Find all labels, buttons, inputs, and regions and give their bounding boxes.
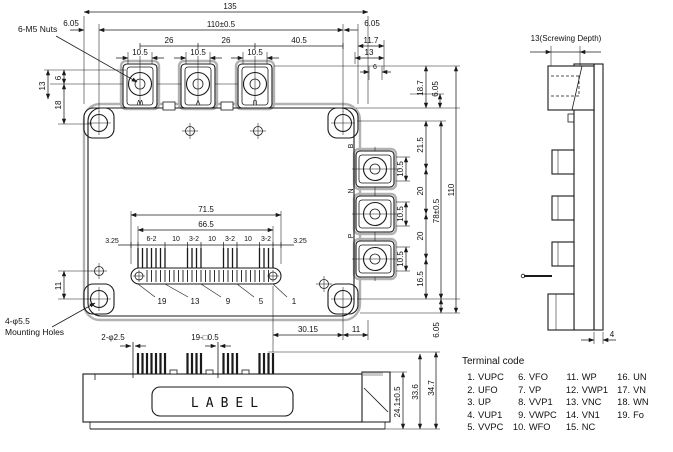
dim-edge-right: 6.05 xyxy=(364,19,380,28)
guide-pin-round-label: 2-φ2.5 xyxy=(101,333,125,342)
dim-right-20b: 20 xyxy=(416,231,425,240)
pin-number-13: 13 xyxy=(191,297,200,306)
dim-right-18-7: 18.7 xyxy=(416,80,425,96)
dim-left-6: 6 xyxy=(54,75,63,80)
terminal-letter-v: V xyxy=(195,98,200,105)
nuts-leader xyxy=(56,36,137,82)
terminal-code-col-1: 1.VUPC 2.UFO 3.UP 4.VUP1 5.VVPC xyxy=(460,372,504,432)
svg-text:10.5: 10.5 xyxy=(132,48,148,57)
svg-text:10.5: 10.5 xyxy=(396,161,405,177)
terminal-letter-p: P xyxy=(348,233,355,238)
terminal-item: 13.VNC xyxy=(564,397,608,407)
dim-pin-group-1: 6-2 xyxy=(146,236,156,243)
dim-right-20a: 20 xyxy=(416,186,425,195)
terminal-letter-n: N xyxy=(348,188,355,193)
pin-number-1: 1 xyxy=(292,297,297,306)
terminal-code-title: Terminal code xyxy=(462,356,672,367)
top-view: W V U B N P xyxy=(50,56,400,320)
dim-right-pitch: 78±0.5 xyxy=(432,198,441,223)
dim-terminal-pitch-2: 26 xyxy=(222,36,231,45)
dim-pin-group-3: 3-2 xyxy=(225,236,235,243)
terminal-letter-b: B xyxy=(348,143,355,148)
svg-text:10.5: 10.5 xyxy=(190,48,206,57)
top-dimensions: 135 110±0.5 6.05 6.05 26 26 40.5 10.5 10… xyxy=(63,2,391,112)
mounting-holes-label-2: Mounting Holes xyxy=(5,327,64,337)
dim-right-16-5: 16.5 xyxy=(416,271,425,287)
igbt-module-outline-drawing: W V U B N P xyxy=(0,0,673,452)
pin-number-9: 9 xyxy=(226,297,231,306)
terminal-item: 8.VVP1 xyxy=(511,397,557,407)
dim-front-33-6: 33.6 xyxy=(411,384,420,400)
terminal-item: 4.VUP1 xyxy=(460,410,504,420)
dim-right-overall: 110 xyxy=(447,183,456,196)
dim-overall-width: 135 xyxy=(223,2,237,11)
dim-right-21-5: 21.5 xyxy=(416,137,425,153)
dim-left-18: 18 xyxy=(54,100,63,109)
dim-pins-outer: 71.5 xyxy=(198,205,214,214)
terminal-letter-w: W xyxy=(136,98,143,105)
terminal-item: 3.UP xyxy=(460,397,504,407)
dim-pin-group-4: 3-2 xyxy=(261,236,271,243)
screwing-depth-label: 13(Screwing Depth) xyxy=(531,34,602,43)
mounting-tabs xyxy=(84,108,358,314)
terminal-code-col-4: 16.UN 17.VN 18.WN 19.Fo xyxy=(615,372,649,432)
mounting-holes xyxy=(87,111,355,311)
dim-pins-edge-left: 3.25 xyxy=(105,238,119,245)
dim-terminal-pitch-3: 40.5 xyxy=(291,36,307,45)
dim-right-top-a: 11.7 xyxy=(364,36,380,45)
front-view: LABEL 2-φ2.5 19-□0.5 24.1±0.5 33.6 34.7 xyxy=(83,333,440,429)
terminal-item: 6.VFO xyxy=(511,372,557,382)
pin-dimensions: 71.5 66.5 3.25 3.25 6-2 10 3-2 10 3-2 10… xyxy=(105,205,307,306)
dim-pins-edge-right: 3.25 xyxy=(293,238,307,245)
svg-text:10.5: 10.5 xyxy=(396,206,405,222)
svg-text:10.5: 10.5 xyxy=(247,48,263,57)
dim-body-width: 110±0.5 xyxy=(207,20,236,29)
dim-pin-space-3: 10 xyxy=(244,236,252,243)
terminal-item: 10.WFO xyxy=(511,422,557,432)
mounting-holes-label-1: 4-φ5.5 xyxy=(5,316,30,326)
terminal-item: 9.VWPC xyxy=(511,410,557,420)
terminal-item: 17.VN xyxy=(615,385,649,395)
terminal-code-col-3: 11.WP 12.VWP1 13.VNC 14.VN1 15.NC xyxy=(564,372,608,432)
terminal-item: 12.VWP1 xyxy=(564,385,608,395)
dim-pin-group-2: 3-2 xyxy=(189,236,199,243)
dim-edge-left: 6.05 xyxy=(63,19,79,28)
dim-terminal-pitch-1: 26 xyxy=(165,36,174,45)
terminal-item: 15.NC xyxy=(564,422,608,432)
label-text: LABEL xyxy=(191,396,265,411)
pin-number-19: 19 xyxy=(158,297,167,306)
terminal-item: 18.WN xyxy=(615,397,649,407)
dim-front-24-1: 24.1±0.5 xyxy=(393,386,402,418)
terminal-item: 19.Fo xyxy=(615,410,649,420)
terminal-code-table: Terminal code 1.VUPC 2.UFO 3.UP 4.VUP1 5… xyxy=(460,356,672,432)
dim-pin-space-2: 10 xyxy=(208,236,216,243)
pin-number-5: 5 xyxy=(259,297,264,306)
right-screw-terminals: B N P xyxy=(348,143,400,281)
top-screw-terminals: W V U xyxy=(50,56,272,108)
terminal-item: 14.VN1 xyxy=(564,410,608,420)
dim-base-thickness: 4 xyxy=(610,330,615,339)
dim-right-bottom: 6.05 xyxy=(432,322,441,338)
side-view: 13(Screwing Depth) 4 xyxy=(521,34,616,344)
dim-pins-inner: 66.5 xyxy=(198,220,214,229)
guide-pin-square-label: 19-□0.5 xyxy=(191,333,219,342)
terminal-item: 16.UN xyxy=(615,372,649,382)
module-body-outline xyxy=(88,108,354,316)
terminal-item: 2.UFO xyxy=(460,385,504,395)
dim-front-34-7: 34.7 xyxy=(427,380,436,396)
nuts-label: 6-M5 Nuts xyxy=(18,24,57,34)
dim-right-top-c: 6 xyxy=(373,64,377,71)
terminal-item: 5.VVPC xyxy=(460,422,504,432)
front-terminal-shroud xyxy=(362,372,390,422)
terminal-letter-u: U xyxy=(252,98,257,105)
terminal-item: 1.VUPC xyxy=(460,372,504,382)
terminal-item: 7.VP xyxy=(511,385,557,395)
dim-bottom-11: 11 xyxy=(352,325,361,334)
side-baseplate xyxy=(594,64,603,330)
terminal-code-col-2: 6.VFO 7.VP 8.VVP1 9.VWPC 10.WFO xyxy=(511,372,557,432)
dim-right-6-05: 6.05 xyxy=(431,81,440,97)
terminal-item: 11.WP xyxy=(564,372,608,382)
dim-left-13: 13 xyxy=(38,81,47,90)
dim-right-top-b: 13 xyxy=(365,48,374,57)
dim-right-screw-widths: 10.5 10.5 10.5 xyxy=(396,157,410,271)
signal-pin-slot xyxy=(131,248,281,284)
svg-text:10.5: 10.5 xyxy=(396,251,405,267)
dim-left-11: 11 xyxy=(54,281,63,290)
dim-bottom-30-15: 30.15 xyxy=(298,325,319,334)
dim-pin-space-1: 10 xyxy=(172,236,180,243)
